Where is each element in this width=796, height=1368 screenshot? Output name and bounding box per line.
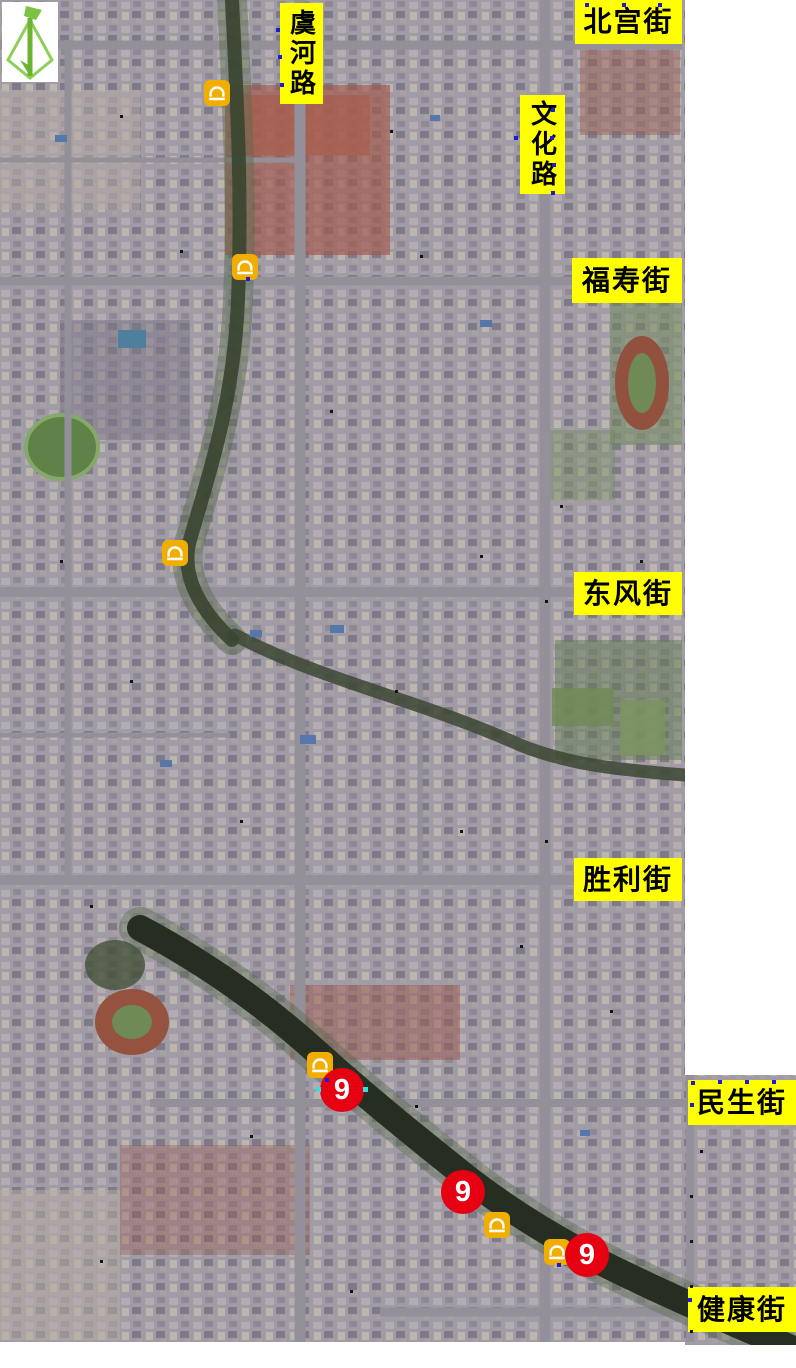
street-label-dongfeng[interactable]: 东风街 bbox=[574, 572, 682, 615]
vertex-dot-blue[interactable] bbox=[280, 83, 284, 87]
vertex-dot-blue[interactable] bbox=[745, 1080, 749, 1084]
satellite-imagery bbox=[0, 0, 796, 1368]
vertex-dot-black bbox=[545, 840, 548, 843]
vertex-dot-black bbox=[480, 555, 483, 558]
vertex-dot-blue[interactable] bbox=[552, 163, 556, 167]
vertex-dot-black bbox=[700, 1150, 703, 1153]
vertex-dot-black bbox=[130, 680, 133, 683]
vertex-dot-black bbox=[180, 250, 183, 253]
vertex-dot-blue[interactable] bbox=[585, 3, 589, 7]
vertex-dot-blue[interactable] bbox=[691, 1081, 695, 1085]
numbered-marker[interactable]: 9 bbox=[441, 1170, 485, 1214]
vertex-dot-blue[interactable] bbox=[514, 136, 518, 140]
bridge-icon[interactable] bbox=[204, 80, 230, 106]
vertex-dot-black bbox=[520, 945, 523, 948]
selection-handle[interactable] bbox=[316, 1087, 321, 1092]
vertex-dot-blue[interactable] bbox=[246, 277, 250, 281]
vertex-dot-black bbox=[690, 1195, 693, 1198]
vertex-dot-black bbox=[640, 560, 643, 563]
vertex-dot-black bbox=[120, 115, 123, 118]
vertex-dot-black bbox=[460, 830, 463, 833]
vertex-dot-blue[interactable] bbox=[551, 108, 555, 112]
street-label-jiankang[interactable]: 健康街 bbox=[688, 1287, 796, 1332]
vertex-dot-blue[interactable] bbox=[772, 1080, 776, 1084]
vertex-dot-black bbox=[100, 1260, 103, 1263]
satellite-map[interactable] bbox=[0, 0, 796, 1368]
vertex-dot-black bbox=[250, 1135, 253, 1138]
bridge-glyph bbox=[486, 1214, 508, 1236]
bridge-glyph bbox=[206, 82, 228, 104]
numbered-marker[interactable]: 9 bbox=[320, 1068, 364, 1112]
vertex-dot-blue[interactable] bbox=[688, 1298, 692, 1302]
vertex-dot-black bbox=[610, 1010, 613, 1013]
vertex-dot-black bbox=[350, 1290, 353, 1293]
vertex-dot-black bbox=[330, 410, 333, 413]
vertex-dot-blue[interactable] bbox=[718, 1080, 722, 1084]
map-viewer: 北宫街虞河路文化路福寿街东风街胜利街民生街健康街 999 bbox=[0, 0, 796, 1368]
vertex-dot-blue[interactable] bbox=[622, 3, 626, 7]
vertex-dot-blue[interactable] bbox=[276, 28, 280, 32]
bridge-icon[interactable] bbox=[484, 1212, 510, 1238]
bridge-icon[interactable] bbox=[232, 254, 258, 280]
bridge-icon[interactable] bbox=[162, 540, 188, 566]
vertex-dot-black bbox=[545, 600, 548, 603]
vertex-dot-blue[interactable] bbox=[551, 191, 555, 195]
vertex-dot-blue[interactable] bbox=[557, 1263, 561, 1267]
street-label-wenhua[interactable]: 文化路 bbox=[520, 95, 565, 194]
vertex-dot-black bbox=[415, 1105, 418, 1108]
vertex-dot-black bbox=[395, 690, 398, 693]
vertex-dot-black bbox=[240, 820, 243, 823]
north-compass bbox=[2, 2, 58, 82]
vertex-dot-black bbox=[60, 560, 63, 563]
vertex-dot-blue[interactable] bbox=[658, 3, 662, 7]
vertex-dot-black bbox=[90, 905, 93, 908]
vertex-dot-black bbox=[390, 130, 393, 133]
vertex-dot-blue[interactable] bbox=[690, 1103, 694, 1107]
street-label-beigong[interactable]: 北宫街 bbox=[575, 0, 682, 44]
north-arrow-icon bbox=[2, 2, 58, 82]
vertex-dot-blue[interactable] bbox=[278, 55, 282, 59]
numbered-marker[interactable]: 9 bbox=[565, 1233, 609, 1277]
street-label-fushou[interactable]: 福寿街 bbox=[572, 258, 682, 303]
vertex-dot-blue[interactable] bbox=[325, 1078, 329, 1082]
vertex-dot-black bbox=[420, 255, 423, 258]
vertex-dot-black bbox=[690, 1330, 693, 1333]
selection-handle[interactable] bbox=[363, 1087, 368, 1092]
vertex-dot-black bbox=[560, 505, 563, 508]
street-label-yuhe[interactable]: 虞河路 bbox=[280, 3, 323, 104]
street-label-minsheng[interactable]: 民生街 bbox=[688, 1080, 796, 1125]
street-label-shengli[interactable]: 胜利街 bbox=[574, 858, 682, 901]
bridge-glyph bbox=[164, 542, 186, 564]
vertex-dot-black bbox=[690, 1285, 693, 1288]
vertex-dot-blue[interactable] bbox=[550, 136, 554, 140]
vertex-dot-black bbox=[690, 1240, 693, 1243]
bridge-glyph bbox=[234, 256, 256, 278]
